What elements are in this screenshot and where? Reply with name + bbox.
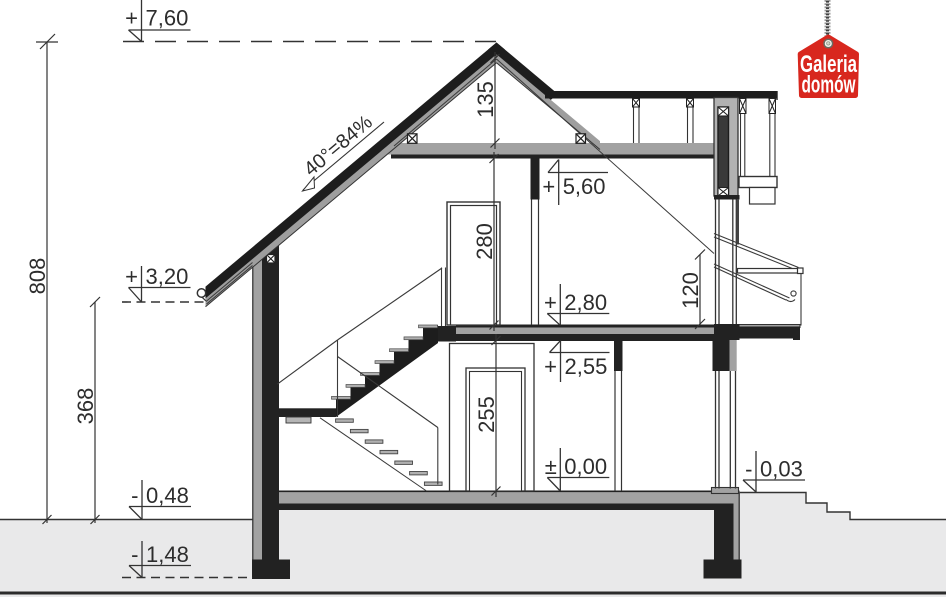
svg-text:+: +	[544, 354, 557, 379]
svg-text:+: +	[125, 6, 138, 31]
svg-text:255: 255	[474, 396, 499, 433]
svg-text:368: 368	[73, 388, 98, 425]
svg-text:3,20: 3,20	[146, 264, 189, 289]
svg-text:2,80: 2,80	[564, 290, 607, 315]
svg-text:1,48: 1,48	[146, 542, 189, 567]
svg-text:0,48: 0,48	[146, 483, 189, 508]
svg-text:-: -	[131, 483, 138, 508]
svg-text:7,60: 7,60	[146, 6, 189, 31]
svg-text:120: 120	[678, 272, 703, 309]
svg-text:808: 808	[25, 258, 50, 295]
svg-text:domów: domów	[802, 72, 856, 99]
svg-text:+: +	[542, 174, 555, 199]
svg-text:135: 135	[473, 81, 498, 118]
svg-text:-: -	[131, 542, 138, 567]
svg-text:280: 280	[472, 223, 497, 260]
svg-text:2,55: 2,55	[565, 354, 608, 379]
svg-text:+: +	[544, 290, 557, 315]
svg-text:0,00: 0,00	[564, 454, 607, 479]
svg-text:+: +	[125, 264, 138, 289]
svg-text:±: ±	[545, 454, 557, 479]
svg-text:-: -	[745, 457, 752, 482]
svg-text:0,03: 0,03	[760, 457, 803, 482]
svg-text:5,60: 5,60	[563, 174, 606, 199]
